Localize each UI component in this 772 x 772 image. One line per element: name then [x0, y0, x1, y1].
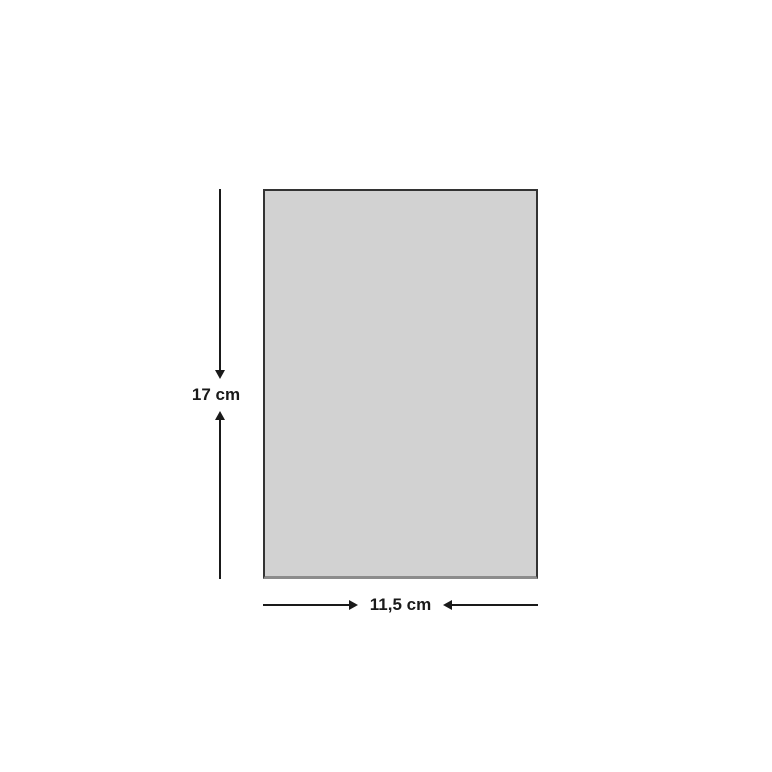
- product-rectangle: [263, 189, 538, 579]
- width-dimension: 11,5 cm: [263, 594, 538, 616]
- arrow-down-icon: [215, 370, 225, 379]
- dimension-line-horizontal-right: [452, 604, 538, 606]
- arrow-up-icon: [215, 411, 225, 420]
- dimension-diagram: 17 cm 11,5 cm: [0, 0, 772, 772]
- arrow-left-icon: [443, 600, 452, 610]
- height-dimension: 17 cm: [189, 189, 251, 579]
- width-label: 11,5 cm: [370, 595, 431, 615]
- dimension-line-horizontal-left: [263, 604, 349, 606]
- height-label: 17 cm: [192, 385, 240, 405]
- dimension-line-vertical-bottom: [219, 420, 221, 579]
- arrow-right-icon: [349, 600, 358, 610]
- dimension-line-vertical-top: [219, 189, 221, 370]
